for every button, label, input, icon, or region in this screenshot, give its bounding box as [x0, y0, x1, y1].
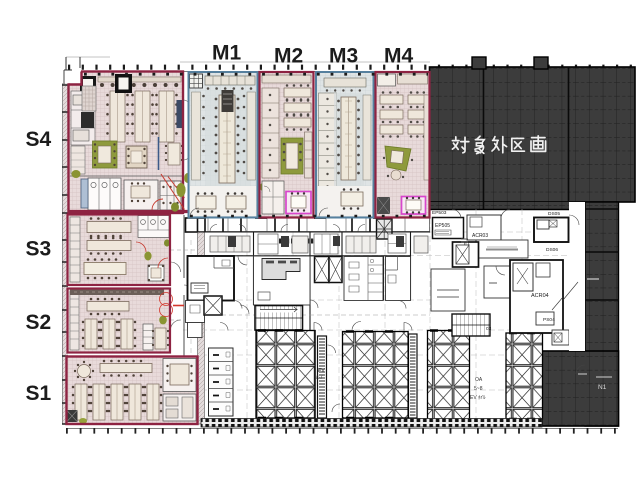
- svg-text:/ﾚ7: /ﾚ7: [316, 375, 323, 381]
- svg-text:EV ﾎｲﾙ: EV ﾎｲﾙ: [470, 395, 486, 401]
- svg-text:EV: EV: [318, 368, 325, 374]
- svg-text:S2: S2: [26, 311, 52, 334]
- svg-text:M2: M2: [274, 44, 303, 67]
- svg-text:OA: OA: [475, 377, 483, 383]
- svg-text:S4: S4: [26, 128, 52, 151]
- svg-text:DS05: DS05: [548, 211, 560, 217]
- svg-text:03: 03: [486, 326, 492, 332]
- svg-text:PS04: PS04: [543, 317, 555, 323]
- svg-text:DS06: DS06: [546, 247, 558, 253]
- svg-text:S1: S1: [26, 382, 52, 405]
- svg-text:EP505: EP505: [435, 223, 450, 229]
- svg-text:M3: M3: [329, 44, 358, 67]
- svg-text:5~8: 5~8: [474, 386, 483, 392]
- svg-text:E1: E1: [464, 241, 470, 247]
- svg-text:M4: M4: [384, 44, 413, 67]
- svg-text:ACR03: ACR03: [472, 233, 488, 239]
- svg-text:EP503: EP503: [432, 210, 447, 216]
- svg-text:ACR04: ACR04: [531, 293, 549, 299]
- svg-text:S3: S3: [26, 238, 52, 261]
- svg-text:N1: N1: [598, 384, 607, 391]
- svg-text:M1: M1: [212, 42, 241, 65]
